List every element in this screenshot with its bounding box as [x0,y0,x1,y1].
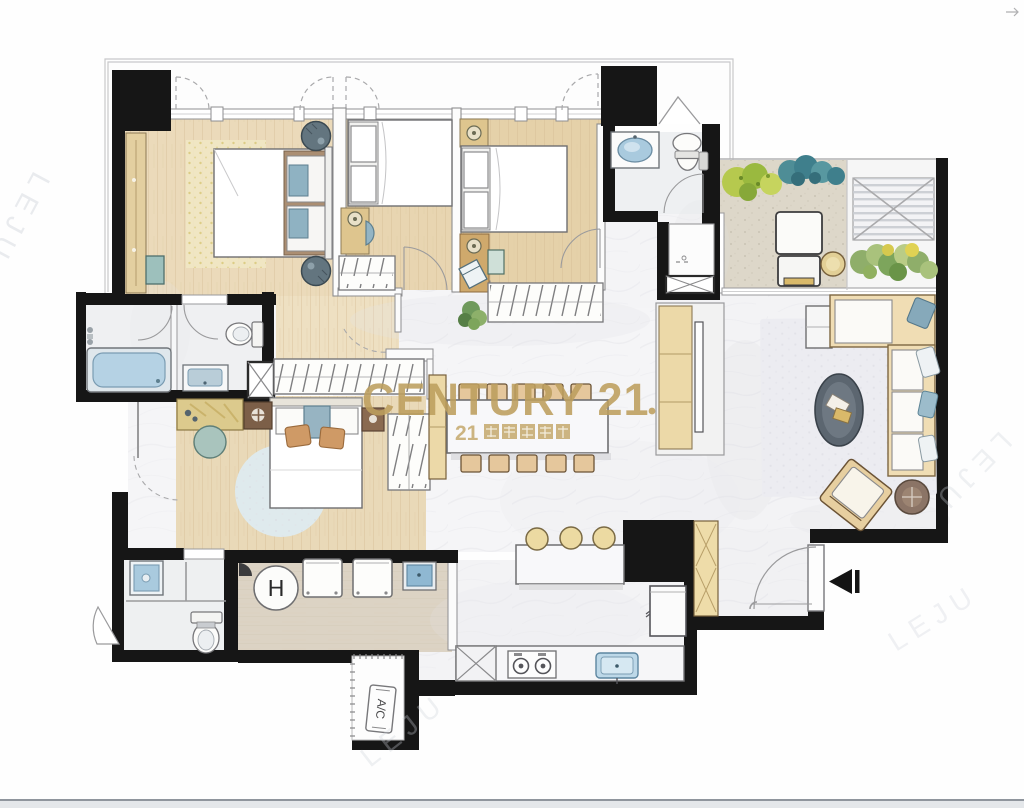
svg-text:CENTURY 21: CENTURY 21 [362,374,650,425]
svg-text:A/C: A/C [373,698,389,720]
svg-text:21: 21 [455,422,479,445]
svg-text:H: H [268,575,285,601]
